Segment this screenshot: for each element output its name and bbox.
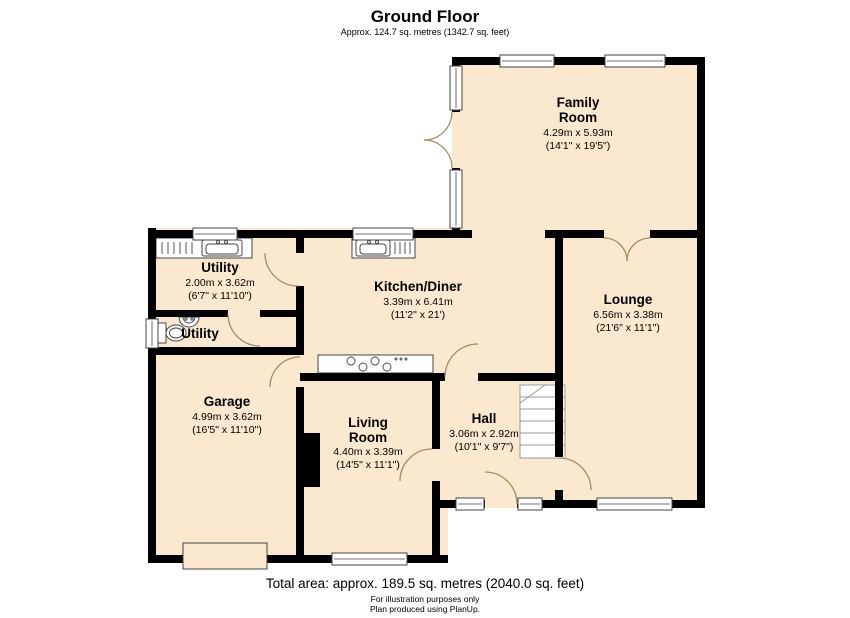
wall bbox=[478, 373, 563, 381]
wall bbox=[300, 373, 445, 381]
wall bbox=[697, 57, 705, 508]
room-label-living-2: Room bbox=[349, 430, 387, 445]
wall bbox=[148, 228, 156, 563]
wall bbox=[432, 377, 440, 449]
window bbox=[456, 498, 484, 510]
window bbox=[450, 170, 462, 228]
window bbox=[518, 498, 542, 510]
door-swing-icon bbox=[424, 112, 452, 140]
page-subtitle: Approx. 124.7 sq. metres (1342.7 sq. fee… bbox=[341, 27, 510, 37]
room-dim-living-imperial: (14'5" x 11'1") bbox=[336, 459, 400, 471]
wall bbox=[296, 238, 304, 253]
room-dim-lounge-metric: 6.56m x 3.38m bbox=[593, 309, 663, 321]
room-dim-kitchen-imperial: (11'2" x 21') bbox=[391, 309, 445, 321]
room-label-utility: Utility bbox=[201, 260, 239, 275]
wall bbox=[148, 347, 304, 355]
room-dim-family-imperial: (14'1" x 19'5") bbox=[546, 140, 611, 152]
room-dim-garage-metric: 4.99m x 3.62m bbox=[192, 411, 262, 423]
chimney-breast bbox=[304, 433, 320, 487]
wall bbox=[296, 317, 304, 347]
window bbox=[332, 553, 407, 565]
room-label-family: Family bbox=[557, 95, 600, 110]
wall bbox=[555, 490, 563, 508]
wall bbox=[452, 57, 705, 65]
room-dim-utility-imperial: (6'7" x 11'10") bbox=[188, 290, 252, 302]
wall bbox=[432, 481, 440, 563]
room-label-lounge: Lounge bbox=[604, 292, 653, 307]
room-dim-kitchen-metric: 3.39m x 6.41m bbox=[383, 296, 453, 308]
room-dim-utility-metric: 2.00m x 3.62m bbox=[185, 277, 255, 289]
room-label-living: Living bbox=[348, 415, 388, 430]
window bbox=[450, 66, 462, 110]
utility-sink-icon bbox=[156, 238, 252, 258]
window bbox=[500, 55, 554, 67]
floor-plan-page: Ground Floor Approx. 124.7 sq. metres (1… bbox=[0, 0, 850, 618]
kitchen-sink-icon bbox=[352, 238, 415, 258]
room-label-kitchen: Kitchen/Diner bbox=[374, 279, 463, 294]
door-swing-icon bbox=[424, 140, 452, 168]
wall bbox=[148, 310, 228, 317]
window bbox=[605, 55, 665, 67]
page-title: Ground Floor bbox=[371, 7, 480, 26]
window bbox=[146, 319, 158, 348]
room-dim-garage-imperial: (16'5" x 11'10") bbox=[192, 424, 262, 436]
wall bbox=[296, 387, 304, 563]
room-dim-living-metric: 4.40m x 3.39m bbox=[333, 446, 403, 458]
wall bbox=[650, 230, 705, 238]
wall bbox=[545, 230, 604, 238]
room-dim-lounge-imperial: (21'6" x 11'1") bbox=[596, 322, 660, 334]
garage-door bbox=[183, 543, 267, 569]
total-area-text: Total area: approx. 189.5 sq. metres (20… bbox=[266, 576, 584, 591]
window bbox=[353, 228, 413, 240]
room-label-hall: Hall bbox=[472, 411, 497, 426]
wall bbox=[296, 286, 304, 310]
room-label-utility-wc: Utility bbox=[181, 326, 219, 341]
disclaimer-text: For illustration purposes only bbox=[371, 594, 480, 604]
credit-text: Plan produced using PlanUp. bbox=[370, 604, 480, 614]
floor-plan-drawing: Ground Floor Approx. 124.7 sq. metres (1… bbox=[0, 0, 850, 618]
window bbox=[597, 498, 672, 510]
window bbox=[193, 228, 237, 240]
hob-icon bbox=[318, 355, 433, 373]
room-label-garage: Garage bbox=[204, 394, 251, 409]
room-label-family-2: Room bbox=[559, 110, 597, 125]
wall bbox=[260, 310, 304, 317]
room-dim-hall-metric: 3.06m x 2.92m bbox=[449, 428, 519, 440]
room-dim-family-metric: 4.29m x 5.93m bbox=[543, 127, 613, 139]
wall bbox=[555, 238, 563, 457]
room-dim-hall-imperial: (10'1" x 9'7") bbox=[455, 441, 514, 453]
